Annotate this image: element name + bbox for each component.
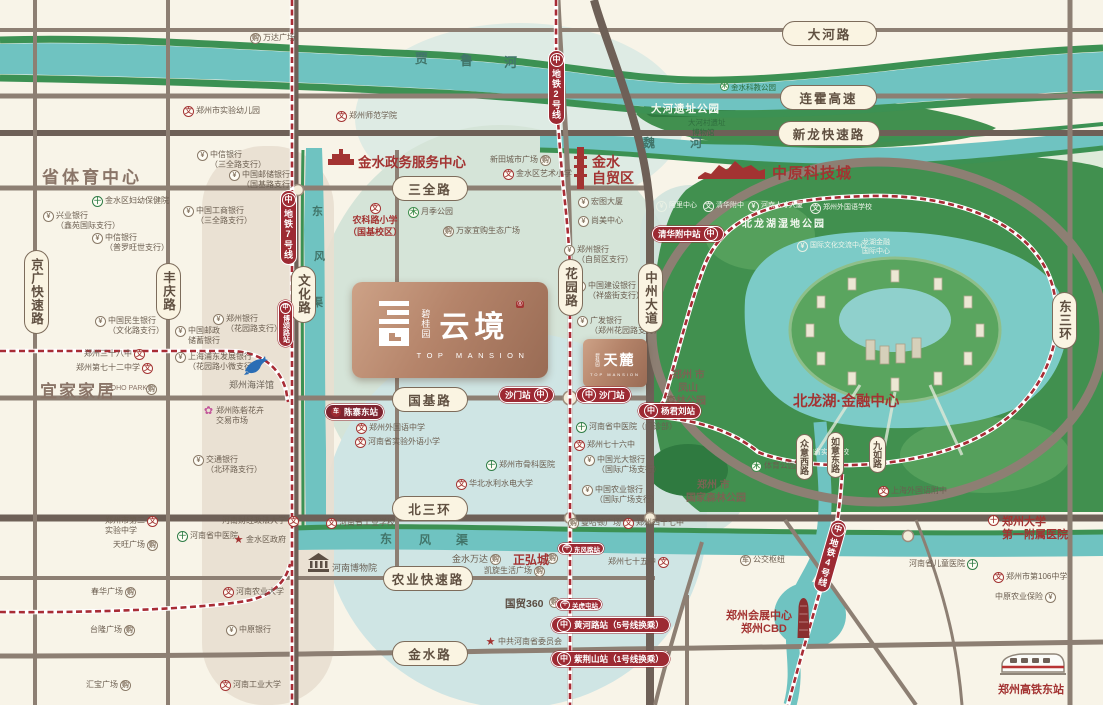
river-wei-char: 魏 [643,134,655,151]
label: 农科路小学 [353,215,398,227]
poi-flower-market: ✿郑州陈砦花卉交易市场 [203,406,264,427]
poi-tcm-clinic: 十河南省中医院（门诊部） [576,422,677,433]
poi-school-47: 文郑州四十七中 [623,518,684,529]
landmark-jswanda: 金水万达 购 [452,554,501,566]
label: 交通银行 [206,455,262,465]
poi-xingye-bank: ¥兴业银行（鑫苑国际支行） [43,211,120,232]
landmark-committee: ★ 中共河南省委员会 [485,637,562,648]
poi-ali-center: ¥阿里中心 [656,201,697,212]
landmark-kejiao-park: 金水科教公园 [731,82,776,93]
label: 新田城市广场 [490,155,538,165]
poi-boc: ¥交通银行（北环路支行） [193,455,262,476]
label: （北环路支行） [206,465,262,475]
school-icon: 文 [326,518,337,529]
station-shamen-east: 中 沙门站 [576,387,631,403]
road-pill-jinshui: 金水路 [392,641,468,666]
station-label: 黄河路站（5号线换乘） [574,619,664,631]
project2-logo-row: 碧桂园 天麓 [595,350,636,370]
poi-shangmei: ¥尚美中心 [578,216,623,227]
poi-yueji-park: 木月季公园 [408,207,453,218]
canal-dongfeng-char: 渠 [456,531,468,548]
landmark-museum: 河南博物院 [332,561,377,574]
poi-sports-park: 木体育公园 [751,461,796,472]
school-icon: 文 [134,349,145,360]
shop-icon: 购 [124,625,135,636]
station-label: 紫荆山站（1号线换乘） [574,653,664,665]
station-shamen-west: 沙门站 中 [499,387,554,403]
station-label: 沙门站 [599,389,625,401]
label: （文化路支行） [108,326,164,336]
label: 河南省中医院（门诊部） [589,422,677,432]
poi-tailong-plaza: 台隆广场购 [90,625,135,636]
poi-kindergarten: 文郑州市实验幼儿园 [183,106,260,117]
poi-nongda: 文河南农业大学 [223,587,284,598]
star-icon: ★ [485,637,496,648]
school-icon: 文 [142,363,153,374]
poi-children-hospital: 河南省儿童医院十 [909,559,978,570]
label: 郑州第七十二中学 [76,363,140,373]
metro-logo-icon: 中 [534,388,548,402]
metro-logo-icon: 中 [829,521,846,538]
poi-school-106: 文郑州市第106中学 [993,572,1067,583]
metro-logo-icon: 中 [282,193,296,207]
label: 万家宜购生态广场 [456,226,520,236]
poi-xintian-plaza: 新田城市广场购 [490,155,551,166]
school-icon: 文 [810,203,821,214]
landmark-national-forest-line2: 国家森林公园 [686,489,746,504]
school-icon: 文 [223,587,234,598]
label: 中原农业保险 [995,592,1043,602]
station-guanhutun: 中 关虎屯站 [556,599,602,610]
bank-icon: ¥ [578,197,589,208]
poi-gongda-university: 文河南工业大学 [220,680,281,691]
project2-logo-card: 碧桂园 天麓 TOP MANSION [583,339,647,387]
label: 龙湖金融 [862,238,890,247]
government-building-icon [328,148,355,171]
river-jialu-char: 鲁 [460,50,473,69]
label: 金水区艺术小学 [516,169,572,179]
label: 公交枢纽 [753,555,785,565]
label: 尚美中心 [591,216,623,226]
poi-nongke-school: 文 农科路小学（国基校区） [348,203,402,238]
road-pill-fengqing: 丰庆路 [156,263,181,320]
school-icon: 文 [183,106,194,117]
shop-icon: 购 [120,680,131,691]
label: （国基校区） [348,227,402,239]
station-yangjunliu: 中 杨君刘站 [638,403,701,419]
shop-icon: 购 [125,587,136,598]
poi-minsheng-bank: ¥中国民生银行（文化路支行） [95,316,164,337]
poi-huabei-university: 文华北水利水电大学 [456,479,533,490]
label: 郑州市第106中学 [1006,572,1067,582]
road-pill-dahe: 大河路 [782,21,877,46]
label: （祥盛街支行） [588,291,644,301]
bank-icon: ¥ [1045,592,1056,603]
project-logo-card: 碧桂园 云境 ® TOP MANSION [352,282,548,378]
label: 郑州银行 [226,314,282,324]
poi-exp-primary: 文河南省实验外语小学 [355,437,440,448]
poi-kejiao-icon: 木 [720,82,729,91]
station-zijingshan: 中 紫荆山站（1号线换乘） [551,651,670,667]
poi-bus-hub: 车公交枢纽 [740,555,785,566]
station-label: 沙门站 [505,389,531,401]
label: 郑州陈砦花卉 [216,406,264,416]
project-logo-mark [376,301,412,347]
project2-subtitle: TOP MANSION [590,372,640,377]
zzu-hospital-icon-wrap: 十 [988,515,999,526]
label: 宏图大厦 [591,197,623,207]
label: 交易市场 [216,416,264,426]
label: 曼哈顿广场 [581,518,621,528]
museum-icon [308,553,329,577]
canal-dongfeng-char: 风 [314,248,325,264]
poi-tcm-hospital: 十河南省中医院 [177,531,238,542]
label: 郑州市第二 [105,516,145,526]
label: 中国民生银行 [108,316,164,326]
bank-icon: ¥ [584,455,595,466]
poi-lakefinance: 龙湖金融国际中心 [862,238,890,256]
road-pill-ruyidong: 如意东路 [827,432,844,478]
landmark-gov-service-center: 金水政务服务中心 [358,151,466,171]
label: 郑州师范学院 [349,111,397,121]
label: 汇宝广场 [86,680,118,690]
bank-icon: ¥ [183,206,194,217]
landmark-dahecun-line2: 博物馆 [692,127,715,138]
poi-ccb: ¥中国建设银行（祥盛街支行） [575,281,644,302]
label: 华北水利水电大学 [469,479,533,489]
label: 郑州七十五中 [608,557,656,567]
star-icon: ★ [233,535,244,546]
label: 中共河南省委员会 [498,637,562,647]
project-subtitle: TOP MANSION [417,351,530,360]
river-jialu-char: 河 [504,52,517,71]
landmark-zzu-hospital-line2: 第一附属医院 [1002,526,1068,542]
bank-icon: ¥ [92,233,103,244]
poi-rencai: ¥河南人才大厦 [748,201,803,212]
poi-wanjia-plaza: 购万家宜购生态广场 [443,226,520,237]
hospital-icon: 十 [576,422,587,433]
label: 郑州四十七中 [636,518,684,528]
poi-culture-center: ¥国际文化交流中心 [797,241,866,252]
landmark-hsr-station: 郑州高铁东站 [998,681,1064,697]
road-pill-guoji: 国基路 [392,387,468,412]
label: 上海外国语附中 [891,486,947,496]
project2-name: 天麓 [604,350,636,370]
label: 国际文化交流中心 [810,241,866,250]
bank-icon: ¥ [197,150,208,161]
school-icon: 文 [220,680,231,691]
label: 河南省工业学校 [339,518,395,528]
school-icon: 文 [288,516,299,527]
bank-icon: ¥ [193,455,204,466]
shop-icon: 购 [443,226,454,237]
bank-icon: ¥ [656,201,667,212]
tech-city-skyline-icon [698,158,766,184]
label: （国际广场支行） [597,465,661,475]
metro-line7-label: 地铁7号线 [282,209,295,260]
label: 中原银行 [239,625,271,635]
park-icon: 木 [751,461,762,472]
park-icon: 木 [408,207,419,218]
hospital-icon: 十 [967,559,978,570]
canal-dongfeng-char: 风 [419,531,431,548]
label: 河南工业大学 [233,680,281,690]
road-pill-beisanhuan: 北三环 [392,496,468,521]
bank-icon: ¥ [582,485,593,496]
label: 河南农业大学 [236,587,284,597]
landmark-tech-city: 中原科技城 [772,162,852,183]
poi-tianwang-plaza: 天旺广场购 [113,540,158,551]
poi-school-72: 郑州第七十二中学文 [76,363,153,374]
bank-icon: ¥ [797,241,808,252]
landmark-dahe-ruins-park: 大河遗址公园 [651,101,720,116]
poi-huibao-plaza: 汇宝广场购 [86,680,131,691]
shop-icon: 购 [147,540,158,551]
label: 郑州三十八中 [84,349,132,359]
road-pill-lianhuo: 连霍高速 [780,85,877,110]
poi-shiyan-school: 郑州市第二实验中学文 [105,516,158,537]
poi-chunhua-plaza: 春华广场购 [91,587,136,598]
poi-manhattan-plaza: 购曼哈顿广场 [568,518,621,529]
ftz-tower-icon [572,147,589,194]
label: 河南省儿童医院 [909,559,965,569]
label: 阿里中心 [669,201,697,210]
bank-icon: ¥ [578,216,589,227]
bank-icon: ¥ [213,314,224,325]
label: 天旺广场 [113,540,145,550]
shop-icon: 购 [146,384,157,395]
road-pill-nongye: 农业快速路 [383,566,473,591]
school-icon: 文 [658,557,669,568]
label: （国际广场支行） [595,495,659,505]
bank-icon: ¥ [226,625,237,636]
shop-icon: 购 [540,155,551,166]
project-seal: ® [516,301,523,308]
station-chenzhaidong: 车 陈寨东站 [325,404,384,420]
landmark-wetland-park: 北龙湖湿地公园 [742,215,826,230]
project-logo-row: 碧桂园 云境 ® [376,301,523,347]
landmark-ftz-line2: 自贸区 [592,168,634,188]
bank-icon: ¥ [175,326,186,337]
poi-gongye-school: 文河南省工业学校 [326,518,395,529]
poi-art-school: 文金水区艺术小学 [503,169,572,180]
station-label: 东风路站 [574,544,600,554]
label: （普罗旺世支行） [105,243,169,253]
poi-wanda: 购万达广场 [250,33,295,44]
station-huanghelu: 中 黄河路站（5号线换乘） [551,617,670,633]
school-icon: 文 [336,111,347,122]
station-label: 清华附中站 [658,228,701,240]
school-icon: 文 [703,201,714,212]
poi-psbc-guoji: ¥中国邮储银行（国基路支行） [229,170,298,191]
label: （三全路支行） [196,216,252,226]
bank-icon: ¥ [564,245,575,256]
station-bosonglu: 中 博颂路站 [278,300,293,347]
label: 兴业银行 [56,211,120,221]
metro-logo-icon: 中 [550,53,564,67]
label: 春华广场 [91,587,123,597]
label: 郑州市骨科医院 [499,460,555,470]
shop-icon: 购 [490,554,501,565]
shop-icon: 购 [568,518,579,529]
canal-dongfeng-char: 东 [380,530,392,547]
poi-hongtu: ¥宏图大厦 [578,197,623,208]
label: 月季公园 [421,207,453,217]
bank-icon: ¥ [43,211,54,222]
road-pill-sanquan: 三全路 [392,176,468,201]
station-label: 陈寨东站 [344,406,378,418]
label: 中信银行 [210,150,266,160]
label: 清华附中 [716,201,744,210]
bus-icon: 车 [740,555,751,566]
label: 河南省实验外语小学 [368,437,440,447]
metro-logo-icon: 中 [704,227,718,241]
label: 国际中心 [862,247,890,256]
label: 中国工商银行 [196,206,252,216]
label: （鑫苑国际支行） [56,221,120,231]
shop-icon: 购 [250,33,261,44]
bank-icon: ¥ [748,201,759,212]
poi-caida-university: 河南财经政法大学文 [222,516,299,527]
label: 体育公园 [764,461,796,471]
station-label: 杨君刘站 [661,405,695,417]
landmark-ikea-en: YOHO PARK [106,385,147,392]
label: （自贸区支行） [577,255,633,265]
road-pill-wenhua: 文化路 [291,266,316,323]
road-pill-xinlong: 新龙快速路 [778,121,880,146]
school-icon: 文 [356,423,367,434]
poi-foreign-middle: 文郑州外国语中学 [356,423,425,434]
river-jialu-char: 贾 [415,48,428,67]
flower-icon: ✿ [203,406,214,417]
poi-citic-sanquan: ¥中信银行（三全路支行） [197,150,266,171]
school-icon: 文 [147,516,158,527]
label: 郑州外国语中学 [369,423,425,433]
label: 实验中学 [105,526,145,536]
road-pill-huayuan: 花园路 [558,259,583,316]
label: 中国农业银行 [595,485,659,495]
metro-logo-icon: 中 [280,303,291,314]
label: （花园路支行） [226,324,282,334]
project-brand: 碧桂园 [419,309,432,339]
bank-icon: ¥ [229,170,240,181]
hospital-icon: 十 [988,515,999,526]
poi-school-76: 文郑州七十六中 [574,440,635,451]
metro-line2-label: 地铁2号线 [550,69,563,120]
bank-icon: ¥ [95,316,106,327]
school-icon: 文 [623,518,634,529]
school-icon: 文 [370,203,381,214]
poi-school-75: 郑州七十五中文 [608,557,669,568]
poi-school-38: 郑州三十八中文 [84,349,145,360]
poi-shfz-school: 文上海外国语附中 [878,486,947,497]
label: 河南省中医院 [190,531,238,541]
poi-bone-hospital: 十郑州市骨科医院 [486,460,555,471]
poi-jinshui-gov: ★金水区政府 [233,535,286,546]
landmark-ikea: 宜家家居 [40,377,116,402]
station-label: 博颂路站 [281,315,291,343]
school-icon: 文 [574,440,585,451]
project2-brand: 碧桂园 [595,353,601,367]
project-name: 云境 [439,302,509,346]
label: 中国邮储银行 [242,170,298,180]
hospital-icon: 十 [177,531,188,542]
poi-foreign-language-school: 文郑州外国语学校 [810,203,872,214]
park-icon: 木 [720,82,729,91]
label: 河南财经政法大学 [222,516,286,526]
metro-logo-icon: 中 [557,618,571,632]
landmark-cbd-line2: 郑州CBD [741,620,787,636]
metro-logo-icon: 中 [557,652,571,666]
location-map: 贾 鲁 河 魏 河 东 风 渠 东 风 渠 大河路 连霍高速 新龙快速路 三全路… [0,0,1103,705]
landmark-aquarium: 郑州海洋馆 [229,378,274,391]
label: 郑州市实验幼儿园 [196,106,260,116]
poi-guangda-bank: ¥中国光大银行（国际广场支行） [584,455,661,476]
label: 郑州外国语学校 [823,203,872,212]
label: 万达广场 [263,33,295,43]
label: 台隆广场 [90,625,122,635]
poi-icbc: ¥中国工商银行（三全路支行） [183,206,252,227]
metro-logo-icon: 中 [560,600,570,610]
poi-zhongyuan-bank: ¥中原银行 [226,625,271,636]
road-pill-jiuru: 九如路 [869,436,886,473]
label: 郑州七十六中 [587,440,635,450]
label: 金水万达 [452,554,488,566]
station-label: 关虎屯站 [572,600,598,610]
bank-icon: ¥ [577,316,588,327]
metro-line7-badge: 中 地铁7号线 [280,190,297,265]
poi-qinghua-fuzhong: 文清华附中 [703,201,744,212]
school-icon: 文 [993,572,1004,583]
landmark-beilonghu-finance: 北龙湖·金融中心 [793,390,899,411]
canal-dongfeng-char: 东 [312,203,323,219]
label: 河南人才大厦 [761,201,803,210]
poi-insurance: 中原农业保险¥ [995,592,1056,603]
label: 金水区妇幼保健院 [105,196,169,206]
metro-logo-icon: 中 [644,404,658,418]
metro-logo-icon: 中 [582,388,596,402]
school-icon: 文 [456,479,467,490]
label: 储蓄银行 [188,336,220,346]
label: 中国建设银行 [588,281,644,291]
label: 金水区政府 [246,535,286,545]
hsr-train-icon [1000,650,1066,683]
poi-zzbank-huayuan: ¥郑州银行（花园路支行） [213,314,282,335]
landmark-zhenghongcheng: 正弘城 [513,551,549,568]
school-icon: 文 [503,169,514,180]
school-icon: 文 [355,437,366,448]
poi-normal-college: 文郑州师范学院 [336,111,397,122]
railway-icon: 车 [331,407,341,417]
label: 中国光大银行 [597,455,661,465]
station-dongfenglu: 中 东风路站 [558,543,604,554]
landmark-sports-center: 省体育中心 [42,163,142,188]
cbd-tower-icon [796,598,811,643]
poi-citic-puluowangshi: ¥中信银行（普罗旺世支行） [92,233,169,254]
hospital-icon: 十 [486,460,497,471]
metro-line2-badge: 中 地铁2号线 [548,50,565,125]
road-pill-zhongyixi: 众意西路 [796,434,813,480]
station-qinghuafuzhong: 清华附中站 中 [652,226,724,242]
road-pill-zhongzhou: 中州大道 [638,263,663,333]
metro-logo-icon: 中 [562,544,572,554]
label: 中信银行 [105,233,169,243]
hospital-icon: 十 [92,196,103,207]
road-pill-dongsanhuan: 东三环 [1052,292,1077,349]
label: 郑州银行 [577,245,633,255]
landmark-guomao360: 国贸360 [505,596,544,611]
poi-fuyou-hospital: 十金水区妇幼保健院 [92,196,169,207]
